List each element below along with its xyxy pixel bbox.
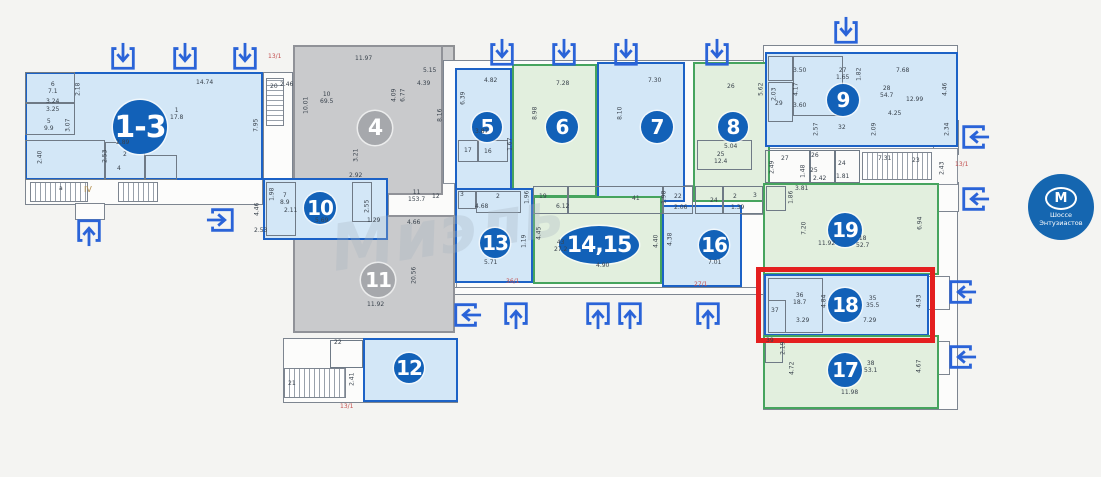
entrance-arrow-left-icon-18 (947, 342, 977, 372)
corridor-line-0 (455, 287, 757, 295)
dim-label-59: 25 12.4 (714, 152, 727, 165)
dim-label-76: 4.45 (536, 227, 543, 240)
entrance-arrow-down-icon-6 (702, 38, 732, 68)
dim-label-100: 26 (811, 153, 819, 160)
dim-label-85: 7.68 (896, 68, 909, 75)
dim-label-108: 2.43 (939, 162, 946, 175)
dim-label-17: 20 (270, 84, 278, 91)
dim-label-37: 2.11 (284, 208, 297, 215)
dim-label-28: 2.92 (349, 173, 362, 180)
dim-label-112: 7.20 (801, 222, 808, 235)
dim-label-25: 6.77 (400, 89, 407, 102)
dim-label-19: 11.97 (355, 56, 372, 63)
dim-label-126: 38 53.1 (864, 361, 877, 374)
dim-label-40: 1.29 (367, 218, 380, 225)
metro-badge: М Шоссе Энтузиастов (1028, 174, 1094, 240)
dim-label-117: 4.84 (821, 295, 828, 308)
dim-label-89: 3.60 (793, 103, 806, 110)
stairs-3 (862, 152, 932, 180)
dim-label-21: 10.01 (303, 97, 310, 114)
unit-badge-16[interactable]: 16 (699, 230, 729, 260)
dim-label-13: 4 (117, 166, 121, 173)
partition-14 (695, 186, 723, 214)
entrance-arrow-left-icon-10 (452, 300, 482, 330)
dim-label-26: 8.16 (437, 109, 444, 122)
dim-label-121: 3.29 (796, 318, 809, 325)
dim-label-47: 4.82 (484, 78, 497, 85)
dim-label-97: 2.34 (944, 123, 951, 136)
dim-label-51: 1.67 (507, 138, 514, 151)
dim-label-69: 3 (460, 192, 464, 199)
stairs-1 (118, 182, 158, 202)
dim-label-5: 5 9.9 (44, 119, 54, 132)
dim-label-127: 4.67 (916, 360, 923, 373)
unit-badge-12[interactable]: 12 (394, 353, 424, 383)
dim-label-67: 1.39 (731, 205, 744, 212)
dim-label-83: 27 1.65 (836, 68, 849, 81)
dim-label-84: 1.82 (856, 68, 863, 81)
dim-label-56: 26 (727, 84, 735, 91)
dim-label-82: 3.50 (793, 68, 806, 75)
dim-label-2: 2.18 (75, 83, 82, 96)
dim-label-104: 24 (838, 161, 846, 168)
dim-label-52: 7.28 (556, 81, 569, 88)
dim-label-103: 2.42 (813, 176, 826, 183)
dim-label-44: 12 (432, 194, 440, 201)
dim-label-66: 2 (733, 194, 737, 201)
dim-label-38: 5.69 (315, 218, 328, 225)
entrance-arrow-right-icon-9 (206, 205, 236, 235)
dim-label-48: 3.87 (475, 129, 488, 136)
entrance-arrow-up-icon-14 (693, 300, 723, 330)
dim-label-43: 11 153.7 (408, 190, 425, 203)
floorplan-canvas: Миэль М Шоссе Энтузиастов 1-341156789101… (0, 0, 1101, 477)
dim-label-101: 1.48 (800, 165, 807, 178)
entrance-arrow-left-icon-16 (960, 184, 990, 214)
metro-icon: М (1045, 187, 1077, 210)
dim-label-115: 6.94 (917, 217, 924, 230)
partition-23 (766, 186, 786, 211)
dim-label-3: 3.24 (46, 99, 59, 106)
dim-label-95: 32 (838, 125, 846, 132)
dim-label-50: 16 (484, 149, 492, 156)
dim-label-116: 36 18.7 (793, 293, 806, 306)
dim-label-20: 10 69.5 (320, 92, 333, 105)
partition-12 (568, 186, 663, 214)
dim-label-55: 8.10 (617, 107, 624, 120)
dim-label-54: 7.30 (648, 78, 661, 85)
dim-label-90: 28 54.7 (880, 86, 893, 99)
dim-label-96: 2.09 (871, 123, 878, 136)
dim-label-130: 27/1 (694, 282, 707, 289)
dim-label-49: 17 (464, 148, 472, 155)
dim-label-9: 2.40 (37, 151, 44, 164)
dim-label-34: 13/1 (340, 404, 353, 411)
dim-label-78: 4.40 (653, 235, 660, 248)
entrance-arrow-down-icon-1 (170, 42, 200, 72)
entrance-arrow-up-icon-11 (501, 300, 531, 330)
dim-label-125: 4.72 (789, 362, 796, 375)
entrance-arrow-up-icon-12 (583, 300, 613, 330)
dim-label-35: 1.98 (269, 188, 276, 201)
dim-label-15: IV (84, 187, 92, 194)
dim-label-32: 21 (288, 381, 296, 388)
entrance-arrow-left-icon-15 (960, 122, 990, 152)
dim-label-62: 1.98 (661, 191, 668, 204)
dim-label-6: 3.07 (65, 119, 72, 132)
dim-label-129: 36/1 (506, 279, 519, 286)
entrance-arrow-down-icon-3 (487, 38, 517, 68)
dim-label-64: 2.06 (674, 205, 687, 212)
dim-label-109: 13/1 (955, 162, 968, 169)
dim-label-119: 4.93 (916, 295, 923, 308)
dim-label-91: 12.99 (906, 97, 923, 104)
dim-label-124: 2.19 (780, 342, 787, 355)
dim-label-120: 37 (771, 308, 779, 315)
dim-label-128: 11.98 (841, 390, 858, 397)
dim-label-71: 4.68 (475, 204, 488, 211)
dim-label-39: 2.55 (364, 200, 371, 213)
dim-label-60: 19 (539, 194, 547, 201)
dim-label-24: 4.09 (391, 89, 398, 102)
dim-label-110: 3.81 (795, 186, 808, 193)
unit-badge-9[interactable]: 9 (827, 84, 859, 116)
partition-17 (768, 56, 793, 81)
dim-label-81: 7.01 (708, 260, 721, 267)
dim-label-102: 25 (810, 168, 818, 175)
dim-label-36: 7 8.9 (280, 193, 290, 206)
dim-label-93: 4.25 (888, 111, 901, 118)
dim-label-77: 43 27.2 (554, 240, 567, 253)
dim-label-42: 2.53 (254, 228, 267, 235)
entrance-arrow-left-icon-17 (947, 277, 977, 307)
entrance-arrow-down-icon-7 (831, 16, 861, 46)
unit-badge-6[interactable]: 6 (546, 111, 578, 143)
entrance-arrow-up-icon-8 (74, 217, 104, 247)
dim-label-10: 2.89 (116, 140, 129, 147)
unit-badge-18[interactable]: 18 (828, 288, 862, 322)
dim-label-94: 2.57 (813, 123, 820, 136)
dim-label-68: 3 (753, 193, 757, 200)
unit-badge-7[interactable]: 7 (641, 111, 673, 143)
dim-label-53: 8.98 (532, 107, 539, 120)
dim-label-4: 3.25 (46, 107, 59, 114)
dim-label-23: 4.39 (417, 81, 430, 88)
dim-label-58: 5.04 (724, 144, 737, 151)
dim-label-18: 2.46 (280, 82, 293, 89)
unit-badge-13[interactable]: 13 (480, 228, 510, 258)
dim-label-27: 3.21 (353, 149, 360, 162)
dim-label-29: 20.56 (411, 267, 418, 284)
dim-label-75: 6.12 (556, 204, 569, 211)
dim-label-31: 22 (334, 340, 342, 347)
dim-label-65: 24 (710, 198, 718, 205)
dim-label-73: 1.19 (521, 235, 528, 248)
dim-label-88: 29 (775, 101, 783, 108)
unit-badge-4[interactable]: 4 (358, 111, 392, 145)
dim-label-22: 5.15 (423, 68, 436, 75)
entrance-arrow-down-icon-5 (611, 38, 641, 68)
entrance-arrow-up-icon-13 (615, 300, 645, 330)
dim-label-92: 4.46 (942, 83, 949, 96)
unit-badge-8[interactable]: 8 (718, 112, 748, 142)
dim-label-1: 6 7.1 (48, 82, 58, 95)
dim-label-99: 27 (781, 156, 789, 163)
dim-label-63: 22 (674, 194, 682, 201)
unit-badge-5[interactable]: 5 (472, 112, 502, 142)
dim-label-113: 18 52.7 (856, 236, 869, 249)
dim-label-0: 14.74 (196, 80, 213, 87)
dim-label-122: 7.29 (863, 318, 876, 325)
dim-label-14: a (59, 186, 63, 193)
unit-badge-17[interactable]: 17 (828, 353, 862, 387)
dim-label-16: 13/1 (268, 54, 281, 61)
dim-label-46: 6.39 (460, 92, 467, 105)
dim-label-79: 4.90 (596, 263, 609, 270)
dim-label-106: 7.31 (878, 156, 891, 163)
dim-label-41: 4.46 (254, 203, 261, 216)
dim-label-57: 5.62 (758, 83, 765, 96)
dim-label-114: 11.92 (818, 241, 835, 248)
partition-6 (478, 140, 508, 162)
dim-label-111: 1.86 (788, 191, 795, 204)
dim-label-87: 4.17 (793, 83, 800, 96)
unit-badge-14,15[interactable]: 14,15 (559, 226, 639, 264)
dim-label-11: 2.53 (102, 150, 109, 163)
dim-label-74: 5.71 (484, 260, 497, 267)
dim-label-61: 41 (632, 196, 640, 203)
dim-label-86: 2.03 (771, 88, 778, 101)
dim-label-70: 2 (496, 194, 500, 201)
dim-label-105: 1.81 (836, 174, 849, 181)
dim-label-107: 23 (912, 158, 920, 165)
entrance-arrow-down-icon-4 (549, 38, 579, 68)
dim-label-45: 4.66 (407, 220, 420, 227)
metro-station-name: Шоссе Энтузиастов (1039, 212, 1082, 227)
dim-label-33: 2.41 (349, 373, 356, 386)
dim-label-30: 11.92 (367, 302, 384, 309)
entrance-arrow-down-icon-2 (230, 42, 260, 72)
entrance-arrow-down-icon-0 (108, 42, 138, 72)
dim-label-98: 2.49 (769, 161, 776, 174)
dim-label-8: 7.95 (253, 119, 260, 132)
partition-4 (145, 155, 177, 180)
dim-label-80: 4.38 (667, 233, 674, 246)
dim-label-7: 1 17.8 (170, 108, 183, 121)
dim-label-72: 1.96 (524, 191, 531, 204)
unit-badge-11[interactable]: 11 (361, 263, 395, 297)
dim-label-12: 2 (123, 152, 127, 159)
dim-label-118: 35 35.5 (866, 296, 879, 309)
dim-label-123: 39 (766, 338, 774, 345)
